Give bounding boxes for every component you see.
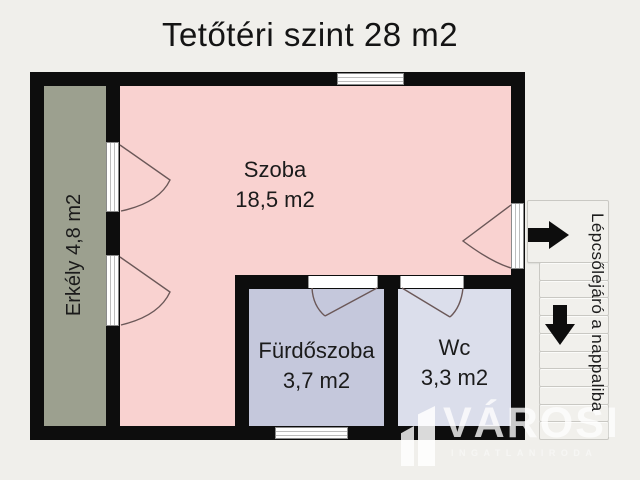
stair-label: Lépcsőlejáró a nappaliba: [581, 213, 607, 463]
bathroom-area: 3,7 m2: [243, 366, 390, 396]
wc-label: Wc 3,3 m2: [398, 333, 511, 393]
bathroom-window: [275, 427, 348, 439]
stair-exit-door: [511, 203, 524, 269]
main-room-label: Szoba 18,5 m2: [140, 155, 410, 215]
main-room-area: 18,5 m2: [140, 185, 410, 215]
balcony-door-lower: [106, 255, 119, 326]
watermark-building-icon: [418, 406, 435, 466]
bathroom-name: Fürdőszoba: [243, 336, 390, 366]
floorplan-canvas: Tetőtéri szint 28 m2 Lépcsőlejáró a napp…: [0, 0, 640, 480]
bathroom-door-opening: [308, 276, 378, 288]
watermark-subtitle: INGATLANIRODA: [451, 448, 597, 458]
balcony-door-upper: [106, 142, 119, 212]
wc-area: 3,3 m2: [398, 363, 511, 393]
balcony-label: Erkély 4,8 m2: [63, 145, 87, 365]
bathroom-label: Fürdőszoba 3,7 m2: [243, 336, 390, 396]
main-room-name: Szoba: [140, 155, 410, 185]
wc-name: Wc: [398, 333, 511, 363]
top-window: [337, 73, 404, 85]
wc-door-opening: [400, 276, 464, 288]
page-title: Tetőtéri szint 28 m2: [10, 16, 610, 54]
